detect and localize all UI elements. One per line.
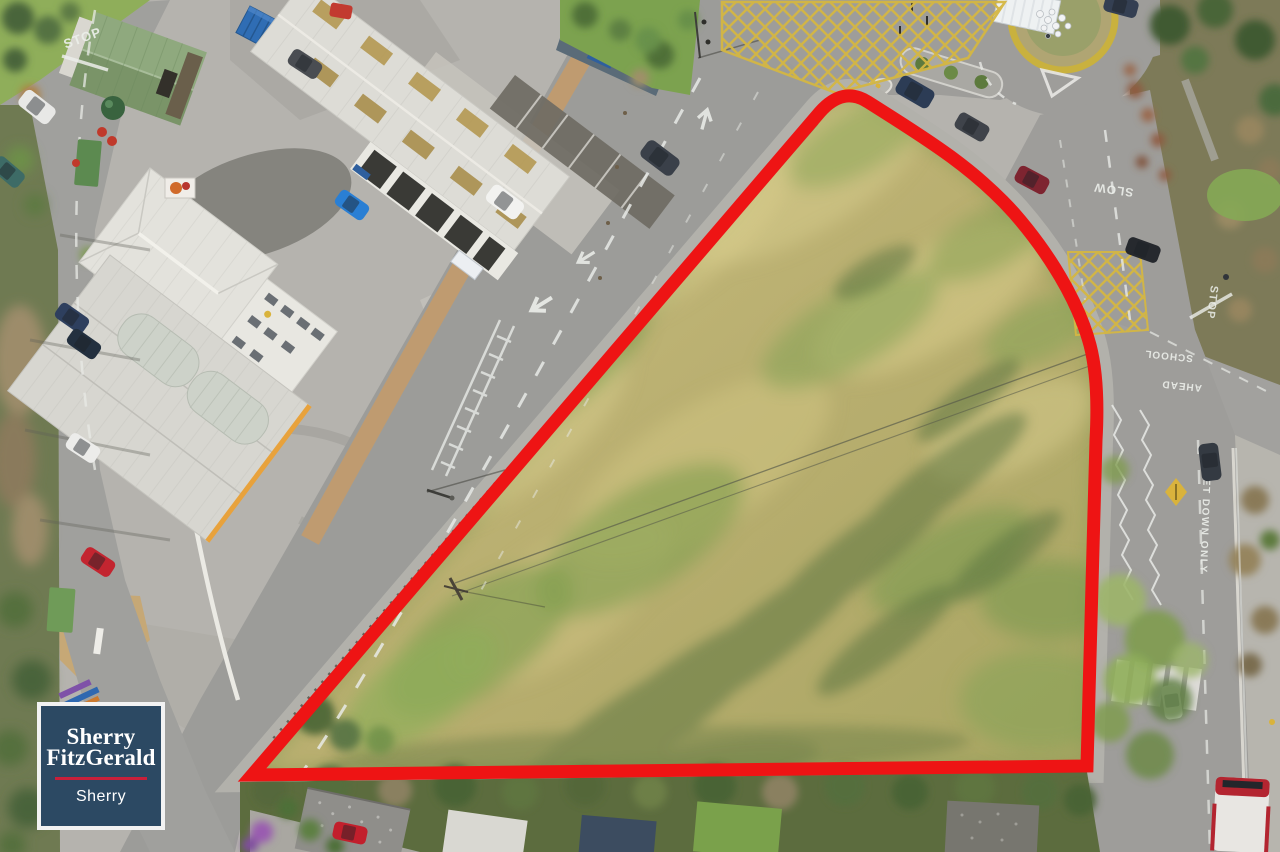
green-water-tank — [101, 96, 125, 120]
watermark-divider — [55, 777, 147, 780]
garden-lawn — [693, 801, 782, 852]
ad-sign-trailer — [165, 178, 195, 198]
agency-name-line1: Sherry — [67, 726, 136, 747]
agency-name-line2: FitzGerald — [46, 747, 155, 768]
agency-office-name: Sherry — [76, 788, 126, 806]
aerial-site-photo: STOP SLOW STOP SCHOOL AHEAD — [0, 0, 1280, 852]
garden-tarp — [578, 815, 656, 852]
bus — [1212, 777, 1270, 852]
house-roof-2 — [945, 801, 1040, 852]
pedestrian — [1223, 274, 1229, 280]
agency-watermark: Sherry FitzGerald Sherry — [37, 702, 165, 830]
aerial-photo-canvas: STOP SLOW STOP SCHOOL AHEAD — [0, 0, 1280, 852]
green-skip-2 — [46, 587, 75, 633]
